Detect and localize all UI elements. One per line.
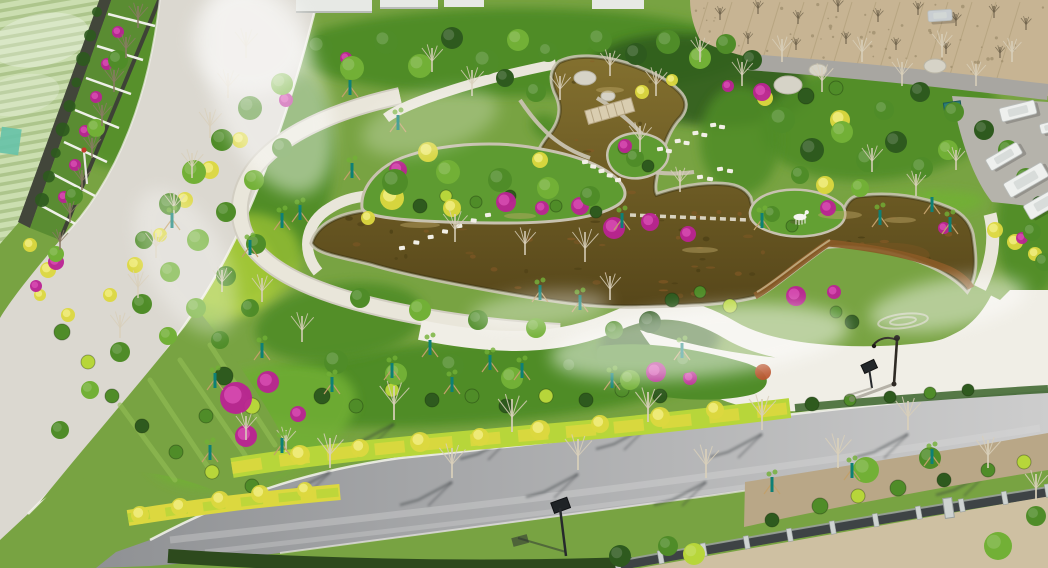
- stepping-stone: [683, 141, 689, 146]
- algae-speckle: [574, 139, 578, 141]
- shrub: [937, 473, 951, 487]
- algae-speckle: [761, 250, 765, 254]
- shrub: [539, 389, 553, 403]
- yellow-flowers-highlight: [133, 508, 143, 518]
- wall-shrub: [84, 30, 96, 42]
- magenta-flowers-highlight: [620, 141, 628, 149]
- soil-speckle: [995, 36, 998, 39]
- sapling-leaves: [211, 438, 216, 443]
- canopy-highlight: [946, 104, 956, 114]
- shrub: [54, 324, 70, 340]
- algae-speckle: [648, 80, 652, 83]
- algae-speckle: [592, 280, 600, 285]
- canopy-highlight: [1028, 508, 1038, 518]
- canopy-highlight: [161, 329, 170, 338]
- magenta-flowers-highlight: [537, 203, 545, 211]
- sapling-leaves: [617, 208, 622, 213]
- shrub: [1017, 455, 1031, 469]
- yellow-flowers-highlight: [653, 409, 664, 420]
- sapling-leaves: [933, 190, 938, 195]
- canopy-highlight: [772, 110, 785, 123]
- sapling-leaves: [295, 200, 300, 205]
- magenta-flowers-highlight: [71, 161, 78, 168]
- soil-speckle: [738, 45, 740, 47]
- sapling-leaves: [453, 370, 458, 375]
- park-scene: [0, 0, 1048, 568]
- sapling-leaves: [327, 372, 332, 377]
- canopy-highlight: [352, 290, 362, 300]
- boulder: [774, 76, 802, 94]
- canopy-highlight: [913, 159, 924, 170]
- soil-speckle: [961, 5, 965, 9]
- sapling-leaves: [277, 433, 282, 438]
- algae-speckle: [735, 272, 742, 276]
- soil-speckle: [829, 25, 833, 29]
- magenta-flowers-highlight: [755, 85, 765, 95]
- soil-speckle: [832, 36, 834, 38]
- canopy-highlight: [802, 140, 814, 152]
- water-reflection: [682, 247, 718, 253]
- sapling-leaves: [277, 208, 282, 213]
- yellow-flowers-highlight: [413, 434, 424, 445]
- canopy-highlight: [582, 188, 592, 198]
- soil-speckle: [714, 17, 715, 18]
- yellow-flowers-highlight: [129, 259, 138, 268]
- shrub: [105, 389, 119, 403]
- shrub: [499, 399, 513, 413]
- parked-car: [928, 9, 956, 25]
- soil-speckle: [766, 50, 768, 52]
- shrub: [199, 409, 213, 423]
- algae-speckle: [465, 252, 473, 255]
- algae-speckle: [737, 212, 741, 216]
- canopy-highlight: [611, 547, 622, 558]
- shrub: [470, 196, 482, 208]
- stepping-stone: [707, 177, 713, 182]
- yellow-flowers-highlight: [445, 201, 455, 211]
- soil-speckle: [816, 3, 819, 6]
- sapling-leaves: [333, 370, 338, 375]
- car-roof: [933, 12, 947, 19]
- sapling-leaves: [945, 212, 950, 217]
- algae-speckle: [457, 229, 467, 231]
- yellow-flowers-highlight: [105, 289, 113, 297]
- canopy-highlight: [342, 58, 354, 70]
- sapling-leaves: [431, 333, 436, 338]
- magenta-flowers-highlight: [92, 93, 99, 100]
- algae-speckle: [716, 210, 721, 214]
- algae-speckle: [699, 258, 705, 261]
- algae-speckle: [514, 286, 521, 289]
- sapling-leaves: [767, 472, 772, 477]
- canopy-highlight: [83, 383, 92, 392]
- soil-speckle: [695, 10, 697, 12]
- shrub: [694, 286, 706, 298]
- algae-speckle: [659, 289, 668, 291]
- canopy-highlight: [89, 121, 98, 130]
- stepping-stone: [697, 175, 703, 180]
- soil-speckle: [990, 57, 993, 60]
- soil-speckle: [870, 45, 873, 48]
- soil-speckle: [706, 20, 708, 22]
- soil-speckle: [914, 55, 916, 57]
- soil-speckle: [835, 16, 837, 18]
- shrub: [590, 206, 602, 218]
- magenta-flowers-highlight: [789, 289, 800, 300]
- soil-speckle: [713, 20, 715, 22]
- magenta-flowers-highlight: [292, 408, 301, 417]
- boulder: [574, 71, 596, 85]
- yellow-flowers-highlight: [299, 484, 308, 493]
- soil-speckle: [822, 56, 824, 58]
- water-reflection: [884, 217, 916, 223]
- sapling-leaves: [535, 280, 540, 285]
- aerial-park-photo: [0, 0, 1048, 568]
- canopy-highlight: [793, 168, 802, 177]
- wall-shrub: [71, 78, 81, 88]
- stepping-stone: [582, 160, 588, 165]
- canopy-highlight: [112, 344, 122, 354]
- sapling-leaves: [301, 198, 306, 203]
- algae-speckle: [524, 269, 528, 273]
- sapling-leaves: [847, 458, 852, 463]
- algae-speckle: [395, 257, 398, 260]
- wall-shrub: [43, 171, 55, 183]
- canopy-highlight: [833, 123, 844, 134]
- shrub: [314, 388, 330, 404]
- shrub: [349, 399, 363, 413]
- sapling-leaves: [425, 335, 430, 340]
- stepping-stone: [413, 240, 419, 245]
- soil-speckle: [974, 61, 977, 64]
- canopy-highlight: [660, 538, 670, 548]
- canopy-highlight: [443, 29, 454, 40]
- canopy-highlight: [503, 369, 514, 380]
- canopy-highlight: [213, 131, 224, 142]
- algae-speckle: [691, 265, 698, 267]
- stepping-stone: [442, 229, 448, 234]
- shrub: [924, 387, 936, 399]
- stepping-stone: [590, 164, 596, 169]
- wall-shrub: [76, 52, 90, 66]
- canopy-highlight: [134, 296, 144, 306]
- canopy-highlight: [627, 45, 638, 56]
- sapling-leaves: [927, 192, 932, 197]
- algae-speckle: [691, 211, 697, 215]
- soil-speckle: [1042, 6, 1044, 8]
- algae-speckle: [749, 272, 755, 276]
- yellow-flowers-highlight: [989, 224, 998, 233]
- stepping-stone: [717, 167, 723, 172]
- canopy-highlight: [590, 30, 602, 42]
- canopy-highlight: [628, 151, 637, 160]
- soil-speckle: [827, 18, 829, 20]
- canopy-highlight: [490, 170, 502, 182]
- algae-speckle: [353, 242, 361, 246]
- algae-speckle: [658, 280, 668, 284]
- stepping-stone: [615, 178, 621, 183]
- shrub: [550, 200, 562, 212]
- magenta-flowers-highlight: [81, 127, 88, 134]
- stepping-stone: [427, 235, 433, 240]
- sapling-leaves: [933, 442, 938, 447]
- sapling-leaves: [205, 440, 210, 445]
- algae-speckle: [706, 266, 716, 268]
- algae-speckle: [659, 220, 664, 222]
- canopy-highlight: [411, 301, 422, 312]
- yellow-flowers-highlight: [668, 75, 675, 82]
- soil-speckle: [976, 25, 978, 27]
- soil-speckle: [888, 29, 890, 31]
- soil-speckle: [986, 57, 990, 61]
- stepping-stone: [692, 131, 698, 136]
- sapling-leaves: [875, 205, 880, 210]
- shrub: [413, 199, 427, 213]
- sapling-leaves: [347, 158, 352, 163]
- canopy-highlight: [987, 535, 1001, 549]
- sapling-leaves: [393, 356, 398, 361]
- algae-speckle: [424, 230, 429, 233]
- canopy-highlight: [246, 172, 256, 182]
- shrub: [890, 480, 906, 496]
- sapling-leaves: [773, 470, 778, 475]
- canopy-highlight: [243, 301, 252, 310]
- sapling-leaves: [541, 278, 546, 283]
- soil-speckle: [829, 28, 831, 30]
- sapling-leaves: [245, 235, 250, 240]
- stepping-stone: [470, 218, 476, 223]
- canopy-highlight: [476, 52, 489, 65]
- algae-speckle: [743, 235, 753, 239]
- stepping-stone: [710, 123, 716, 128]
- canopy-highlight: [876, 102, 886, 112]
- algae-speckle: [574, 268, 582, 270]
- algae-speckle: [858, 237, 865, 239]
- yellow-flowers-highlight: [63, 309, 71, 317]
- canopy-highlight: [853, 181, 862, 190]
- sapling-leaves: [491, 348, 496, 353]
- stepping-stone: [598, 169, 604, 174]
- shrub: [665, 293, 679, 307]
- wall-shrub: [51, 148, 61, 158]
- yellow-flowers-highlight: [818, 178, 828, 188]
- sapling-leaves: [517, 358, 522, 363]
- shrub: [169, 445, 183, 459]
- magenta-flowers-highlight: [829, 287, 837, 295]
- canopy-highlight: [498, 71, 507, 80]
- canopy-highlight: [718, 36, 728, 46]
- sapling-leaves: [853, 456, 858, 461]
- sapling-leaves: [345, 75, 350, 80]
- water-reflection: [596, 87, 624, 93]
- yellow-flowers-highlight: [593, 417, 603, 427]
- sapling-leaves: [951, 210, 956, 215]
- magenta-flowers-highlight: [822, 202, 831, 211]
- yellow-flowers-highlight: [253, 487, 263, 497]
- algae-speckle: [583, 150, 592, 152]
- sapling-leaves: [485, 350, 490, 355]
- magenta-flowers-highlight: [1018, 234, 1025, 241]
- canopy-highlight: [887, 133, 898, 144]
- yellow-flowers-highlight: [213, 493, 223, 503]
- soil-speckle: [901, 24, 904, 27]
- yellow-flowers-highlight: [473, 430, 483, 440]
- soil-speckle: [934, 4, 936, 6]
- algae-speckle: [470, 255, 476, 259]
- yellow-flowers-highlight: [708, 403, 718, 413]
- algae-speckle: [880, 240, 889, 243]
- algae-speckle: [638, 122, 642, 126]
- stepping-stone: [657, 147, 663, 152]
- water-reflection: [400, 222, 440, 228]
- algae-speckle: [590, 60, 595, 62]
- sapling-leaves: [283, 206, 288, 211]
- stepping-stone: [666, 149, 672, 154]
- sapling-leaves: [353, 156, 358, 161]
- canopy-highlight: [539, 179, 550, 190]
- sapling-leaves: [251, 233, 256, 238]
- magenta-flowers-highlight: [724, 82, 731, 89]
- soil-speckle: [703, 7, 704, 8]
- sapling-leaves: [523, 356, 528, 361]
- yellow-flowers-highlight: [25, 239, 33, 247]
- boulder: [924, 59, 946, 73]
- algae-speckle: [491, 267, 498, 271]
- algae-speckle: [590, 221, 600, 223]
- yellow-flowers-highlight: [363, 212, 371, 220]
- soil-speckle: [790, 33, 792, 35]
- canopy-highlight: [53, 423, 62, 432]
- algae-speckle: [628, 191, 637, 195]
- shrub: [805, 397, 819, 411]
- soil-speckle: [869, 31, 871, 33]
- shrub: [579, 393, 593, 407]
- stepping-stone: [719, 125, 725, 130]
- soil-speckle: [780, 7, 783, 10]
- shrub: [465, 389, 479, 403]
- canopy-highlight: [385, 172, 398, 185]
- canopy-highlight: [912, 84, 922, 94]
- wall-shrub: [35, 193, 49, 207]
- sapling-leaves: [927, 444, 932, 449]
- canopy-highlight: [540, 44, 550, 54]
- algae-speckle: [703, 237, 710, 242]
- magenta-flowers-highlight: [224, 386, 242, 404]
- shrub: [829, 81, 843, 95]
- canopy-highlight: [218, 204, 228, 214]
- soil-speckle: [811, 34, 814, 37]
- soil-speckle: [872, 56, 874, 58]
- sapling-leaves: [263, 336, 268, 341]
- shrub: [81, 355, 95, 369]
- magenta-flowers-highlight: [114, 28, 121, 35]
- sapling-leaves: [210, 368, 215, 373]
- shrub: [135, 419, 149, 433]
- algae-speckle: [696, 269, 700, 273]
- soil-speckle: [864, 14, 866, 16]
- yellow-flowers-highlight: [173, 500, 183, 510]
- wall-shrub: [92, 7, 102, 17]
- canopy-highlight: [376, 32, 388, 44]
- shrub: [642, 160, 654, 172]
- yellow-flowers-highlight: [533, 422, 544, 433]
- canopy-highlight: [1025, 225, 1034, 234]
- canopy-highlight: [410, 56, 422, 68]
- canopy-highlight: [1037, 255, 1046, 264]
- canopy-highlight: [442, 356, 454, 368]
- sapling-leaves: [763, 206, 768, 211]
- water-reflection: [504, 213, 536, 219]
- canopy-highlight: [50, 248, 58, 256]
- stepping-stone: [701, 133, 707, 138]
- stepping-stone: [485, 213, 491, 218]
- canopy-highlight: [744, 52, 754, 62]
- shrub: [798, 88, 814, 104]
- algae-speckle: [676, 236, 680, 240]
- algae-speckle: [404, 254, 407, 259]
- magenta-flowers-highlight: [238, 428, 250, 440]
- shrub: [851, 489, 865, 503]
- sapling-leaves: [623, 206, 628, 211]
- sapling-leaves: [257, 338, 262, 343]
- algae-speckle: [672, 282, 679, 284]
- sapling-leaves: [757, 208, 762, 213]
- stepping-stone: [727, 169, 733, 174]
- wall-shrub: [56, 123, 70, 137]
- shrub: [962, 384, 974, 396]
- canopy-highlight: [685, 545, 696, 556]
- canopy-highlight: [976, 122, 986, 132]
- yellow-flowers-highlight: [534, 154, 543, 163]
- sapling-leaves: [283, 431, 288, 436]
- canopy-highlight: [509, 31, 520, 42]
- canopy-highlight: [658, 32, 670, 44]
- sapling-leaves: [447, 372, 452, 377]
- magenta-flowers-highlight: [260, 374, 272, 386]
- algae-speckle: [599, 244, 606, 246]
- sapling-leaves: [351, 73, 356, 78]
- soil-speckle: [928, 29, 931, 32]
- soil-speckle: [872, 31, 876, 35]
- algae-speckle: [567, 238, 576, 241]
- yellow-flowers-highlight: [353, 441, 363, 451]
- canopy-highlight: [67, 189, 76, 198]
- magenta-flowers-highlight: [682, 228, 691, 237]
- magenta-flowers-highlight: [32, 282, 39, 289]
- sapling-leaves: [216, 366, 221, 371]
- canopy-highlight: [310, 38, 323, 51]
- shrub: [205, 465, 219, 479]
- shrub: [765, 513, 779, 527]
- yellow-flowers-highlight: [293, 447, 304, 458]
- greenhouse-tarp: [0, 127, 22, 156]
- magenta-flowers-highlight: [643, 215, 653, 225]
- sapling-leaves: [387, 358, 392, 363]
- canopy-highlight: [856, 460, 869, 473]
- yellow-flowers-highlight: [637, 86, 645, 94]
- shrub: [812, 498, 828, 514]
- sapling-leaves: [881, 203, 886, 208]
- stepping-stone: [399, 246, 405, 251]
- soil-speckle: [820, 38, 821, 39]
- soil-speckle: [888, 56, 891, 59]
- shrub: [884, 391, 896, 403]
- stepping-stone: [674, 139, 680, 144]
- magenta-flowers-highlight: [606, 220, 618, 232]
- yellow-flowers-highlight: [1030, 248, 1038, 256]
- stepping-stone: [607, 173, 613, 178]
- shrub: [425, 393, 439, 407]
